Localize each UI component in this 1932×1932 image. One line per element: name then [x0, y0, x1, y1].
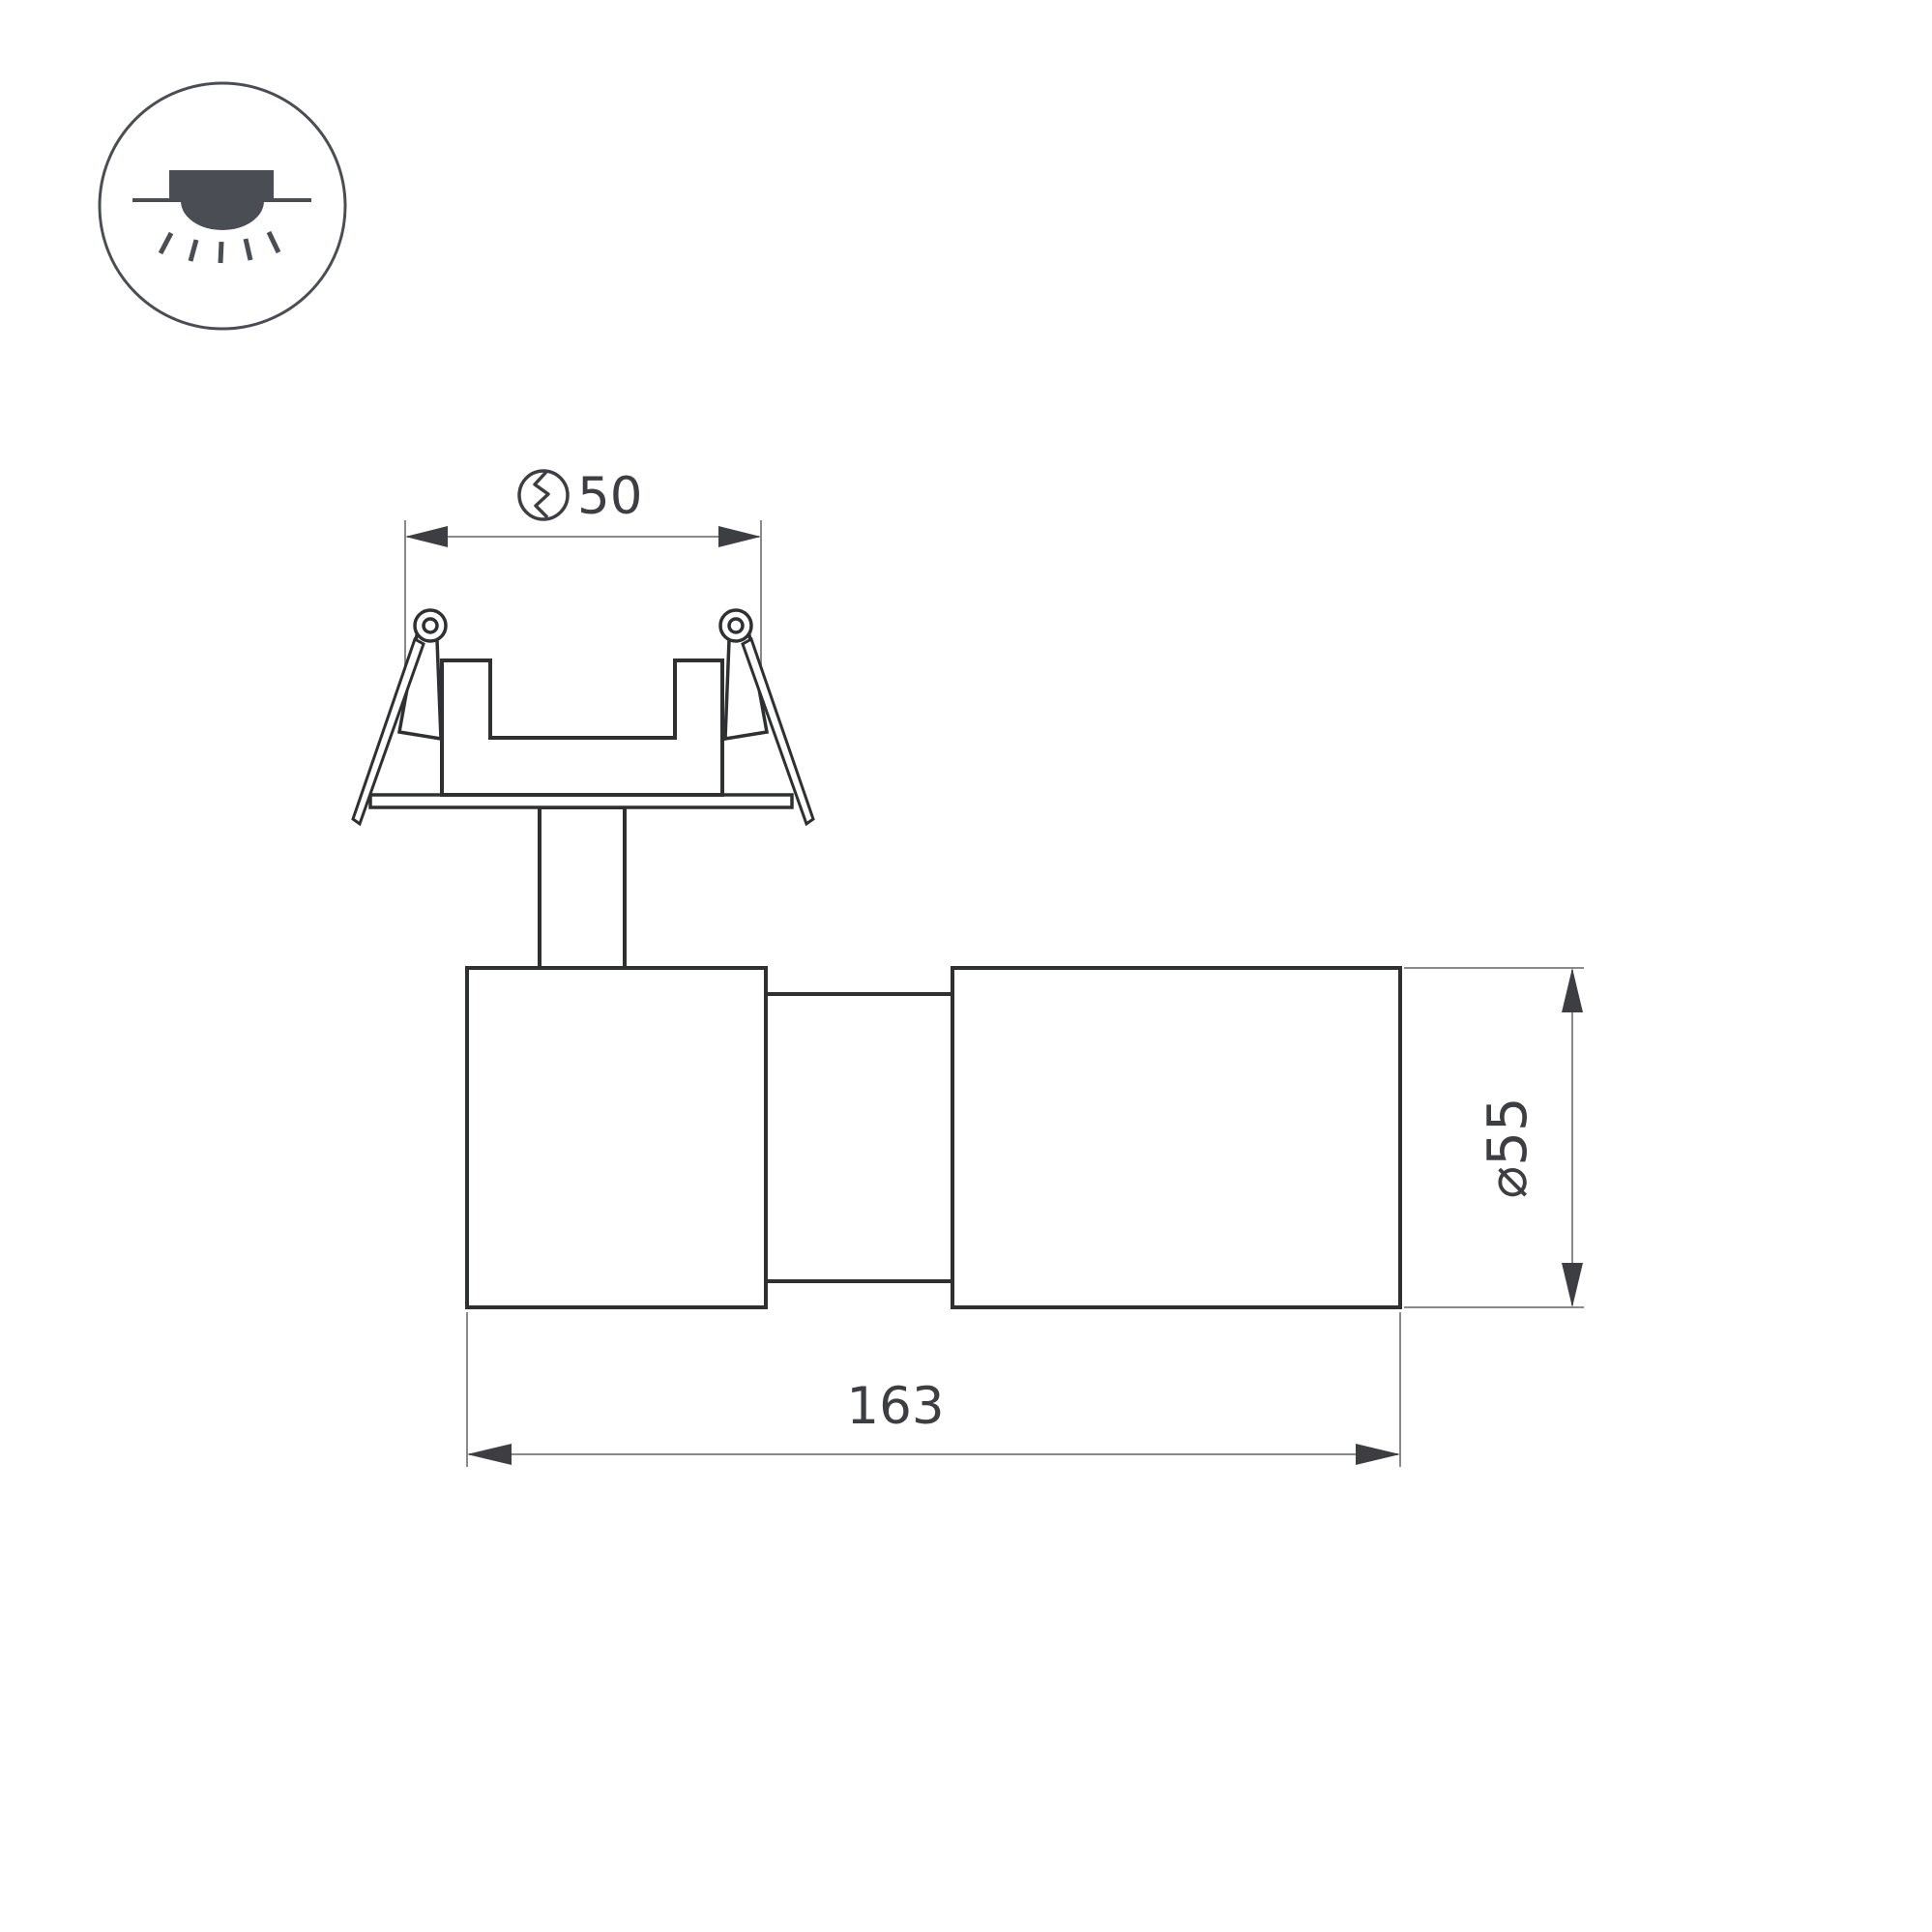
icon-lamp-dome — [181, 201, 264, 230]
icon-housing — [169, 170, 274, 199]
hole-cutout-icon — [519, 471, 568, 519]
spring-clip-left — [353, 610, 446, 824]
technical-drawing: 50 — [0, 0, 1932, 1932]
arrow-up — [1562, 968, 1583, 1012]
clip-ring-left-hole — [424, 619, 437, 632]
body-rear-section — [467, 968, 766, 1307]
housing-cup — [442, 660, 722, 795]
recessed-downlight-icon — [100, 83, 345, 329]
clip-ring-right-hole — [729, 619, 743, 632]
length-value: 163 — [846, 1377, 944, 1436]
arrow-down — [1562, 1263, 1583, 1307]
arrow-right — [718, 526, 761, 547]
dim-cutout: 50 — [405, 467, 761, 684]
diameter-value: ⌀55 — [1477, 1098, 1539, 1199]
dim-length: 163 — [467, 1312, 1400, 1467]
dim-diameter: ⌀55 — [1404, 968, 1584, 1307]
arrow-left — [467, 1444, 512, 1465]
body-front-section — [952, 968, 1400, 1307]
stem — [540, 807, 625, 969]
arrow-left — [405, 526, 448, 547]
mounting-bracket — [353, 610, 813, 969]
drawing-page: 50 — [0, 0, 1932, 1932]
fixture-body — [467, 968, 1400, 1307]
icon-light-rays — [161, 232, 278, 263]
spring-clip-right — [720, 610, 813, 824]
body-joint-section — [766, 994, 952, 1281]
arrow-right — [1356, 1444, 1400, 1465]
cutout-value: 50 — [577, 467, 642, 526]
